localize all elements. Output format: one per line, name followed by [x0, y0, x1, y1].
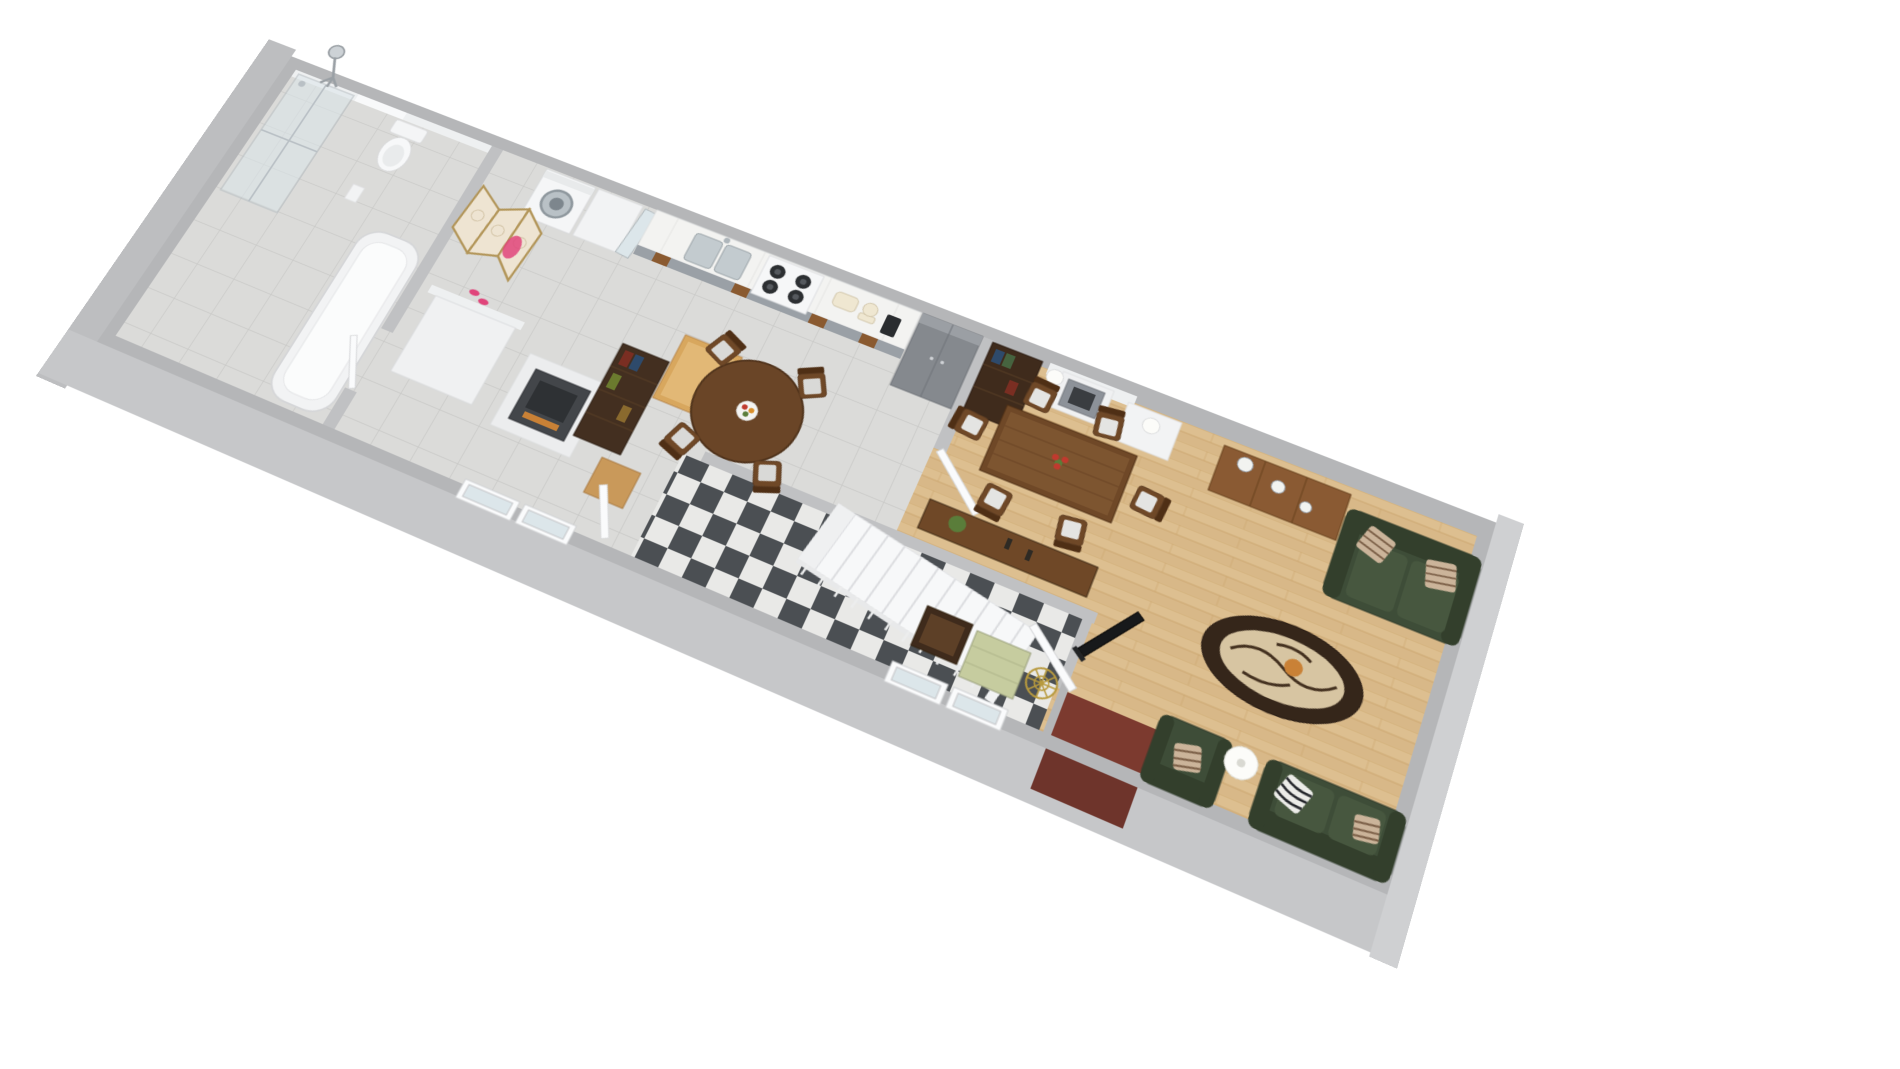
- kitchen-hall-door: [599, 485, 609, 539]
- apartment-plan: [97, 56, 1496, 894]
- plan-svg: [97, 56, 1496, 894]
- kitchen-chair: [797, 367, 826, 399]
- kitchen-chair: [753, 461, 782, 494]
- floor-plan-render: [0, 0, 1900, 1069]
- bathroom-door: [349, 335, 358, 388]
- striped-pillow: [1425, 559, 1457, 593]
- striped-pillow: [1173, 742, 1202, 773]
